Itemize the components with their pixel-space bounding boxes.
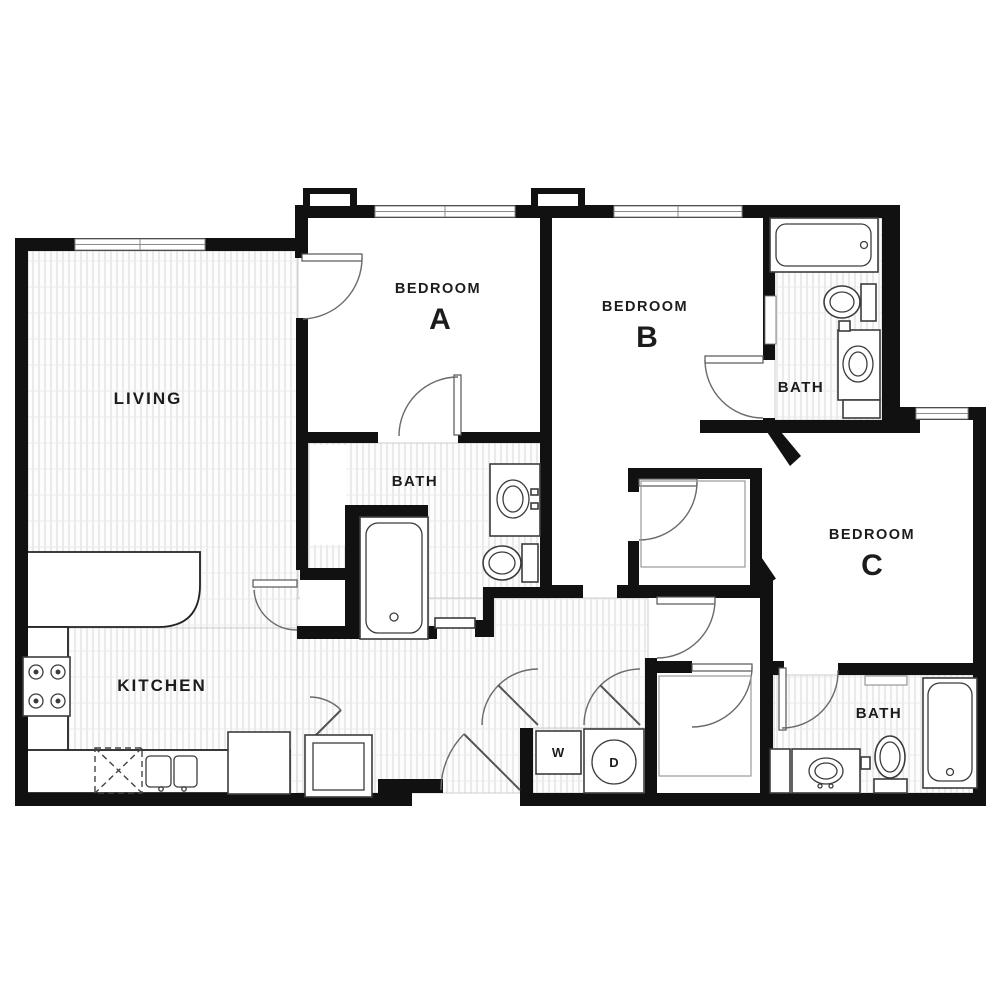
bedroom-b-letter: B <box>636 321 658 354</box>
floor-plan-svg: LIVING KITCHEN BEDROOM A BEDROOM B BEDRO… <box>0 0 1000 1000</box>
closet-shelving <box>641 481 751 776</box>
washer-label: W <box>552 745 565 760</box>
dryer-label: D <box>609 755 618 770</box>
bath-a-threshold <box>435 618 475 628</box>
bathtub-a <box>360 517 428 639</box>
wall-left <box>15 238 28 806</box>
wall-bath-b-right <box>882 205 900 420</box>
floor-plan-canvas: LIVING KITCHEN BEDROOM A BEDROOM B BEDRO… <box>0 0 1000 1000</box>
bath-b-label: BATH <box>778 379 825 396</box>
kitchen-label: KITCHEN <box>117 676 207 695</box>
bedroom-c-label: BEDROOM <box>829 527 915 543</box>
hall-vestibule-door <box>657 597 715 658</box>
bath-c-shelf <box>865 676 907 685</box>
bath-a-label: BATH <box>392 473 439 490</box>
bedroom-c-window <box>916 408 968 419</box>
bedroom-b-window <box>614 206 742 217</box>
bathtub-c <box>923 678 977 788</box>
stove <box>23 657 70 716</box>
living-window <box>75 239 205 250</box>
wall-bath-c-top <box>838 663 985 675</box>
wall-bedroom-a-b-divider <box>540 218 552 443</box>
bath-b-door <box>705 356 763 418</box>
wall-coat-closet-left <box>645 658 657 806</box>
pantry-cabinet <box>305 735 372 797</box>
toilet-a <box>483 544 538 582</box>
wall-closet-b-stub-lower <box>628 541 639 598</box>
bedroom-a-letter: A <box>429 303 451 336</box>
wall-bedroom-a-bottom-left <box>296 432 378 443</box>
sink-vanity-a <box>490 464 540 536</box>
bedroom-a-window <box>375 206 515 217</box>
bath-b-wall-cabinet <box>765 296 776 344</box>
bumpout-2-inner <box>538 194 578 206</box>
bedroom-a-label: BEDROOM <box>395 281 481 297</box>
wall-bedroom-b-bottom-left <box>540 585 583 598</box>
toilet-c <box>874 736 907 793</box>
wall-bedroom-a-bottom-right <box>458 432 552 443</box>
wall-bath-b-bottom <box>700 420 890 433</box>
bedroom-a-bath-door <box>399 375 461 436</box>
closet-b-door <box>639 479 697 540</box>
bath-c-label: BATH <box>856 705 903 722</box>
closet-b-shelf <box>641 481 745 567</box>
sink-vanity-c <box>770 749 870 793</box>
bumpout-1-inner <box>310 194 350 206</box>
wall-coat-closet-top <box>657 661 692 673</box>
wall-closet-b-stub-upper <box>628 468 639 492</box>
living-label: LIVING <box>114 389 183 408</box>
wall-bottom-right <box>520 793 986 806</box>
exterior-bumpouts <box>303 188 585 206</box>
kitchen-peninsula-counter <box>22 552 200 627</box>
bedroom-c-letter: C <box>861 549 883 582</box>
wall-living-a-lower <box>296 318 308 570</box>
entry-closet-floor <box>300 580 345 626</box>
bedroom-a-entry-door <box>302 254 362 319</box>
sink-vanity-b <box>838 321 880 418</box>
wall-living-a-upper <box>295 218 308 258</box>
wall-entry-step <box>378 779 443 793</box>
bath-a-nook <box>310 445 346 545</box>
dishwasher <box>228 732 290 794</box>
toilet-b <box>824 284 876 321</box>
bedroom-b-label: BEDROOM <box>602 299 688 315</box>
bathtub-b <box>770 218 878 272</box>
wall-entry-closet-top <box>300 568 346 580</box>
wall-closet-b-top <box>628 468 762 479</box>
coat-closet-door <box>692 664 752 727</box>
wall-tub-alcove-left <box>345 508 360 639</box>
wall-bath-a-right <box>540 443 552 598</box>
